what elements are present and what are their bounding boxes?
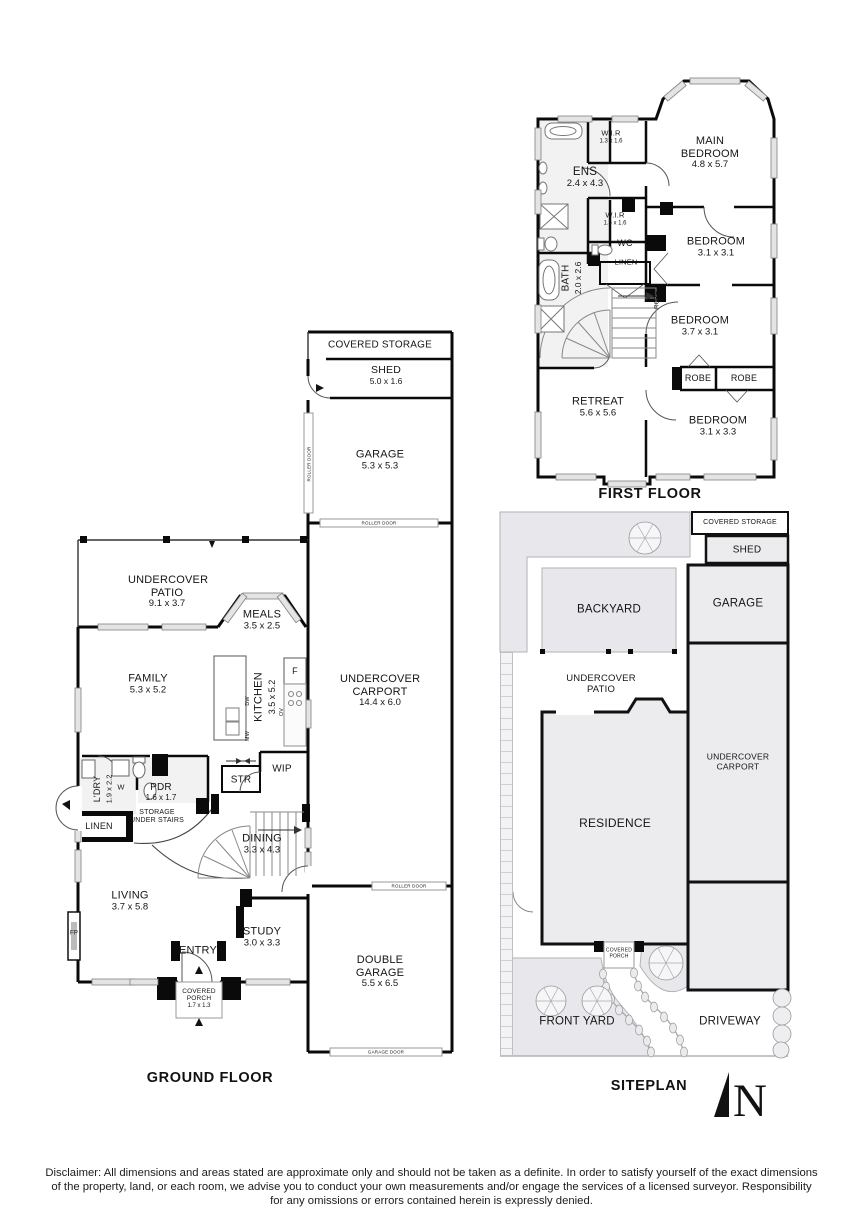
first-floor-title: FIRST FLOOR [598, 486, 701, 502]
room-label-study: STUDY3.0 x 3.3 [243, 925, 281, 948]
site-label-covered-porch: COVERED PORCH [602, 948, 636, 959]
room-label-wir-1: W.I.R1.3 x 1.6 [599, 129, 622, 144]
room-label-robe-1: ROBE [685, 373, 711, 383]
room-label-pdr: PDR1.6 x 1.7 [146, 782, 177, 803]
disclaimer-line: of the property, land, or each room, we … [0, 1180, 863, 1194]
room-label-ldry: L'DRY [92, 776, 102, 803]
roller-door-mid-label: ROLLER DOOR [392, 883, 427, 888]
room-dims-bath: 2.0 x 2.6 [574, 262, 584, 295]
washer-label: W [117, 784, 124, 793]
room-label-bedroom-2: BEDROOM3.1 x 3.1 [687, 235, 745, 258]
oven-label: OV [279, 708, 285, 716]
toilet-icon [538, 238, 544, 250]
room-label-double-garage: DOUBLE GARAGE5.5 x 6.5 [351, 954, 409, 990]
room-label-shed: SHED5.0 x 1.6 [370, 365, 403, 387]
roller-door-side-label: ROLLER DOOR [306, 447, 311, 482]
north-letter: N [733, 1075, 767, 1127]
room-label-covered-storage: COVERED STORAGE [328, 339, 432, 350]
room-label-robe-2: ROBE [731, 373, 757, 383]
room-label-patio: UNDERCOVER PATIO9.1 x 3.7 [128, 574, 206, 610]
room-label-dining: DINING3.3 x 4.3 [242, 832, 282, 855]
north-arrow-icon: N [714, 1072, 767, 1127]
site-label-backyard: BACKYARD [577, 603, 641, 616]
room-label-robe-nook: ROBE [655, 291, 662, 309]
room-label-retreat: RETREAT5.6 x 5.6 [572, 395, 624, 418]
front-yard-area [505, 958, 651, 1056]
washer-box [112, 760, 129, 776]
microwave-label: MW [245, 731, 251, 741]
site-label-driveway: DRIVEWAY [699, 1015, 761, 1028]
room-label-family: FAMILY5.3 x 5.2 [128, 672, 168, 695]
basin-icon [539, 162, 547, 174]
room-label-str: STR [231, 774, 252, 785]
toilet-icon [592, 245, 598, 255]
room-dims-kitchen: 3.5 x 5.2 [267, 680, 277, 715]
room-label-wip: WIP [272, 763, 292, 774]
room-label-bath: BATH [560, 265, 571, 292]
site-rear-garage [688, 882, 788, 990]
site-label-carport: UNDERCOVER CARPORT [702, 752, 774, 771]
site-label-garage: GARAGE [713, 597, 763, 610]
room-label-linen-gf: LINEN [85, 821, 113, 831]
siteplan-title: SITEPLAN [611, 1078, 688, 1094]
room-label-wc: WC [617, 238, 632, 248]
site-label-residence: RESIDENCE [579, 817, 651, 831]
disclaimer-line: for any omissions or errors contained he… [0, 1194, 863, 1208]
room-label-garage: GARAGE5.3 x 5.3 [356, 448, 404, 471]
room-label-ens: ENS2.4 x 4.3 [567, 166, 603, 190]
disclaimer: Disclaimer: All dimensions and areas sta… [0, 1166, 863, 1208]
room-label-covered-porch: COVERED PORCH1.7 x 1.3 [178, 988, 220, 1010]
site-label-front-yard: FRONT YARD [539, 1015, 614, 1028]
fireplace-label: FP [70, 931, 78, 938]
roller-door-top-label: ROLLER DOOR [362, 520, 397, 525]
floorplan-page: N [0, 0, 863, 1227]
room-dims-ldry: 1.9 x 2.2 [106, 775, 115, 804]
room-label-wir-2: W.I.R1.5 x 1.6 [603, 211, 626, 226]
bench-run [284, 684, 306, 746]
fridge-label: F [292, 666, 298, 676]
fence-strip [500, 652, 513, 1056]
room-label-storage-under-stairs: STORAGE UNDER STAIRS [126, 809, 188, 825]
room-label-linen-ff: LINEN [614, 259, 637, 268]
dishwasher-label: DW [245, 696, 251, 706]
hedge-icons [773, 989, 791, 1058]
room-label-main-bedroom: MAIN BEDROOM4.8 x 5.7 [675, 135, 745, 171]
room-label-meals: MEALS3.5 x 2.5 [243, 608, 281, 631]
disclaimer-line: Disclaimer: All dimensions and areas sta… [0, 1166, 863, 1180]
site-label-shed: SHED [733, 544, 762, 555]
floorplan-drawing: N [0, 0, 863, 1227]
room-label-kitchen: KITCHEN [253, 672, 266, 722]
site-label-covered-storage: COVERED STORAGE [703, 519, 777, 527]
side-gate-arc [513, 892, 533, 912]
site-label-patio: UNDERCOVER PATIO [565, 674, 637, 696]
site-window [556, 708, 594, 715]
room-label-bedroom-4: BEDROOM3.1 x 3.3 [689, 414, 747, 437]
room-label-living: LIVING3.7 x 5.8 [111, 889, 148, 912]
room-label-bedroom-3: BEDROOM3.7 x 3.1 [671, 314, 729, 337]
room-label-entry: ENTRY [179, 945, 217, 958]
garage-door-label: GARAGE DOOR [368, 1049, 404, 1054]
room-label-carport: UNDERCOVER CARPORT14.4 x 6.0 [340, 673, 420, 709]
ground-floor-title: GROUND FLOOR [147, 1070, 273, 1086]
